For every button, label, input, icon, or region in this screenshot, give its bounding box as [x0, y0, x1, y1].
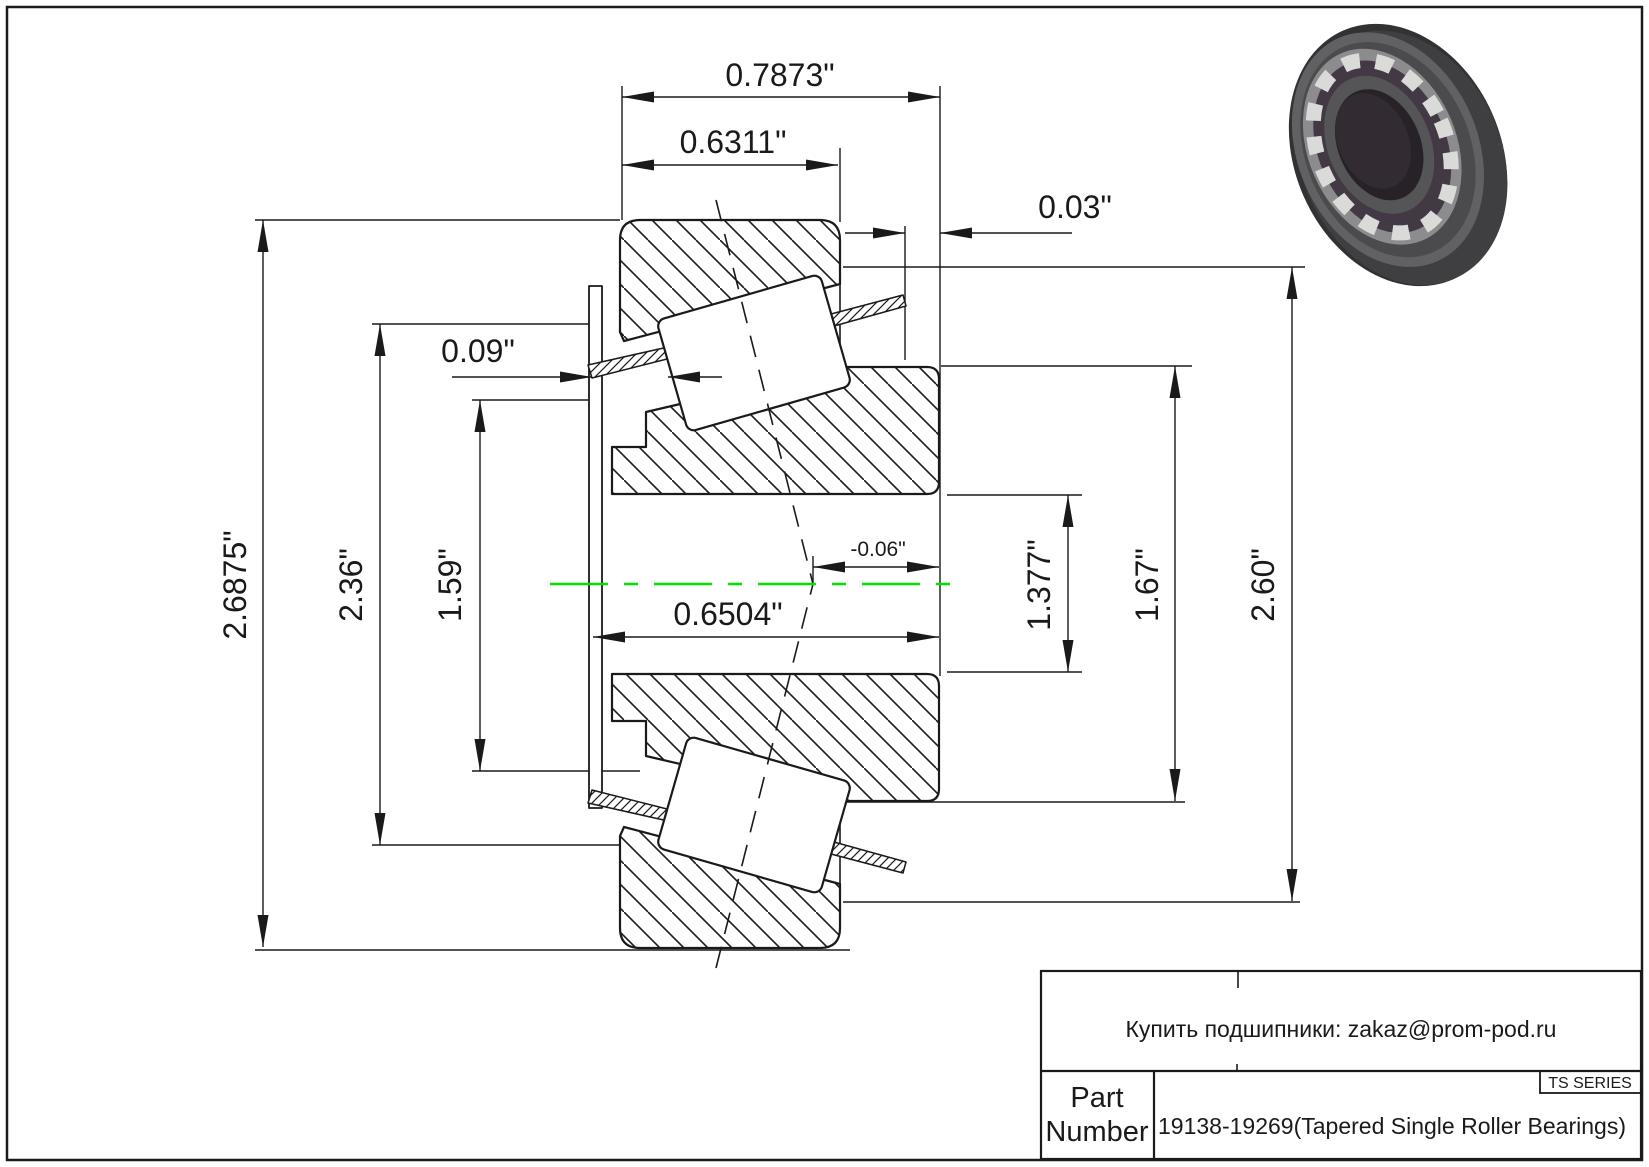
series-label: TS SERIES: [1548, 1075, 1632, 1092]
dim-label-bore-diameter: 1.377": [1021, 539, 1057, 630]
part-label-line2: Number: [1045, 1116, 1148, 1148]
arrowhead-right-icon: [908, 92, 940, 103]
part-label-line1: Part: [1070, 1082, 1123, 1114]
cage-strip-bottom-left: [588, 790, 671, 821]
arrowhead-down-icon: [1170, 769, 1181, 801]
arrowhead-up-icon: [1063, 495, 1074, 527]
dim-label-overall-width: 0.7873": [725, 57, 834, 93]
arrowhead-up-icon: [258, 220, 269, 252]
dimension-cage-stickout-back: 0.03": [845, 189, 1112, 239]
dim-label-cup-width: 0.6311": [680, 124, 787, 160]
arrowhead-left-icon: [940, 228, 972, 239]
arrowhead-left-icon: [622, 92, 654, 103]
arrowhead-up-icon: [1170, 366, 1181, 398]
dimension-flange-od: 2.36": [333, 324, 386, 845]
arrowhead-right-icon: [907, 562, 939, 573]
arrowhead-down-icon: [1287, 869, 1298, 901]
arrowhead-down-icon: [258, 915, 269, 947]
dimension-cone-front-od: 1.67": [1129, 366, 1181, 801]
dim-label-cone-front-od: 1.67": [1129, 548, 1165, 622]
drawing-sheet: 0.7873" 0.6311" 0.03" 0.09" -0.06": [0, 0, 1649, 1167]
dim-label-housing-od: 2.6875": [217, 530, 253, 639]
dimension-center-width: 0.6504": [593, 596, 939, 643]
arrowhead-down-icon: [375, 813, 386, 845]
arrowhead-down-icon: [1063, 640, 1074, 672]
arrowhead-up-icon: [1287, 267, 1298, 299]
arrowhead-right-icon: [806, 160, 838, 171]
dim-label-flange-od: 2.36": [333, 548, 369, 622]
arrowhead-right-icon: [873, 228, 905, 239]
title-block: Купить подшипники: zakaz@prom-pod.ru TS …: [1041, 971, 1641, 1159]
dim-label-center-width: 0.6504": [673, 596, 782, 632]
dimension-race-od: 1.59": [432, 400, 486, 771]
dimension-cup-od: 2.60": [1245, 267, 1298, 901]
dim-label-cage-stickout-back: 0.03": [1038, 189, 1112, 225]
dim-label-effective-center: -0.06": [850, 538, 905, 561]
arrowhead-up-icon: [375, 324, 386, 356]
dimension-cup-width: 0.6311": [622, 124, 838, 171]
arrowhead-left-icon: [622, 160, 654, 171]
bearing-3d-render: [1249, 0, 1548, 321]
dimension-bore-diameter: 1.377": [1021, 495, 1074, 672]
arrowhead-down-icon: [475, 739, 486, 771]
arrowhead-right-icon: [907, 632, 939, 643]
part-number-text: 19138-19269(Tapered Single Roller Bearin…: [1158, 1113, 1626, 1139]
arrowhead-up-icon: [475, 400, 486, 432]
cage-strip-top-right: [831, 295, 906, 326]
arrowhead-right-icon: [560, 372, 592, 383]
cage-strip-bottom-right: [831, 842, 906, 873]
dimension-housing-od: 2.6875": [217, 220, 269, 947]
dimension-effective-center: -0.06": [813, 538, 939, 573]
bearing-drawing-canvas: 0.7873" 0.6311" 0.03" 0.09" -0.06": [0, 0, 1649, 1167]
contact-text: Купить подшипники: zakaz@prom-pod.ru: [1126, 1016, 1557, 1042]
dim-label-cage-stickout-front: 0.09": [441, 333, 515, 369]
dimension-overall-width: 0.7873": [622, 57, 940, 103]
dim-label-cup-od: 2.60": [1245, 548, 1281, 622]
dim-label-race-od: 1.59": [432, 548, 468, 622]
arrowhead-left-icon: [813, 562, 845, 573]
